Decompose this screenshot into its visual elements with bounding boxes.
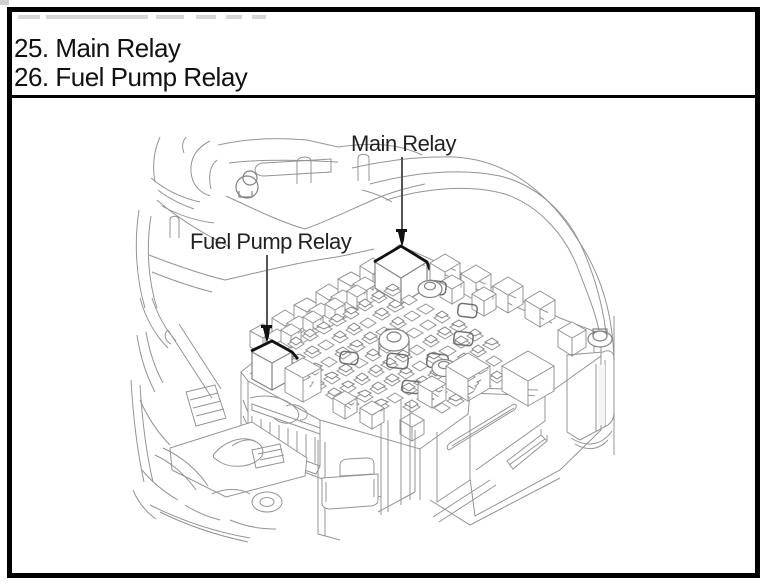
svg-text:Fuel Pump Relay: Fuel Pump Relay bbox=[190, 229, 352, 254]
svg-text:Main Relay: Main Relay bbox=[351, 131, 457, 156]
